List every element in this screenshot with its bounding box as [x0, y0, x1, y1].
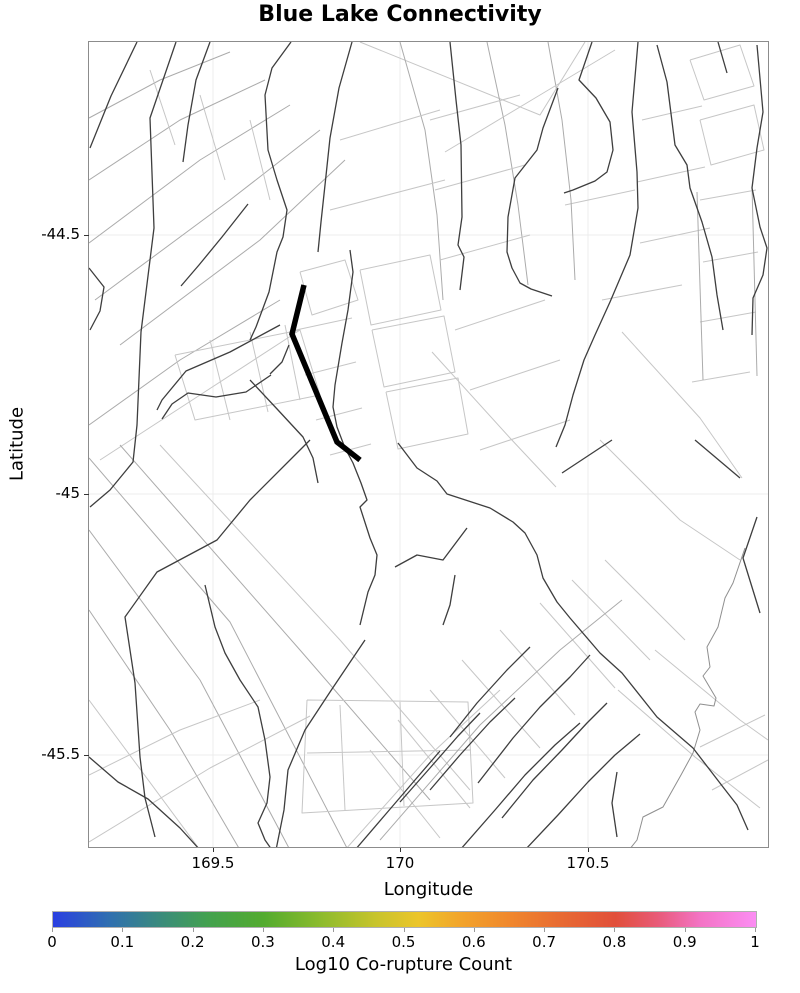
rupture-connection-line — [637, 167, 705, 182]
rupture-connection-line — [462, 660, 540, 748]
fault-trace-line — [400, 713, 480, 802]
x-tick-mark — [213, 848, 214, 852]
fault-trace-line — [695, 440, 740, 478]
rupture-connection-line — [540, 603, 615, 688]
fault-map-svg — [89, 42, 768, 847]
colorbar-tick-label: 0.3 — [251, 933, 275, 951]
fault-trace-line — [183, 42, 210, 162]
rupture-connection-line — [89, 716, 310, 842]
rupture-connection-line — [470, 360, 560, 390]
rupture-connection-line — [89, 458, 348, 847]
fault-trace-line — [318, 42, 352, 252]
fault-trace-line — [395, 528, 467, 567]
fault-trace-line — [90, 42, 176, 507]
rupture-connection-line — [89, 105, 290, 243]
colorbar-tick-mark — [52, 928, 53, 932]
colorbar-label: Log10 Co-rupture Count — [52, 954, 755, 975]
rupture-connection-line — [655, 650, 768, 740]
colorbar-tick-label: 0.5 — [392, 933, 416, 951]
rupture-connection-line — [386, 378, 468, 449]
colorbar-tick-label: 0.8 — [602, 933, 626, 951]
rupture-connection-line — [697, 192, 703, 380]
fault-trace-line — [562, 440, 612, 473]
rupture-connection-line — [752, 186, 757, 376]
rupture-connection-line — [445, 50, 615, 152]
rupture-connection-line — [622, 332, 742, 478]
colorbar-tick-label: 0.4 — [321, 933, 345, 951]
colorbar-tick-label: 0.7 — [532, 933, 556, 951]
fault-trace-line — [398, 443, 748, 830]
fault-trace-line — [718, 42, 727, 73]
fault-trace-line — [525, 734, 640, 847]
rupture-connection-line — [430, 95, 520, 120]
rupture-connection-line — [89, 700, 200, 847]
rupture-connection-line — [572, 580, 650, 660]
rupture-connection-line — [340, 705, 345, 810]
rupture-connection-line — [160, 445, 470, 790]
rupture-connection-line — [430, 690, 505, 778]
fault-trace-line — [743, 517, 760, 613]
rupture-connection-line — [305, 362, 356, 375]
colorbar-tick-label: 0.6 — [462, 933, 486, 951]
rupture-connection-line — [690, 45, 754, 100]
colorbar-tick-mark — [333, 928, 334, 932]
rupture-connection-line — [600, 440, 740, 560]
rupture-connection-line — [296, 318, 352, 330]
colorbar-tick-mark — [755, 928, 756, 932]
fault-trace-line — [355, 751, 440, 847]
rupture-connection-line — [300, 260, 358, 315]
x-tick-label: 170.5 — [567, 854, 610, 872]
fault-trace-line — [502, 703, 607, 818]
colorbar-tick-label: 0.2 — [181, 933, 205, 951]
rupture-connection-line — [400, 42, 443, 300]
rupture-connection-line — [700, 190, 756, 200]
colorbar-tick-mark — [544, 928, 545, 932]
x-tick-label: 170 — [386, 854, 415, 872]
colorbar-tick-mark — [614, 928, 615, 932]
y-axis-label: Latitude — [7, 407, 28, 481]
fault-trace-line — [270, 345, 289, 374]
fault-trace-line — [507, 88, 558, 296]
rupture-connection-line — [120, 445, 430, 800]
colorbar-tick-label: 0.9 — [673, 933, 697, 951]
fault-trace-line — [460, 723, 580, 847]
colorbar-tick-mark — [122, 928, 123, 932]
colorbar-tick-mark — [263, 928, 264, 932]
fault-trace-line — [430, 698, 515, 790]
fault-trace-line — [657, 45, 723, 330]
colorbar-tick-label: 0 — [47, 933, 57, 951]
rupture-connection-line — [605, 560, 685, 640]
rupture-connection-line — [548, 42, 575, 280]
rupture-connection-line — [345, 690, 500, 847]
fault-trace-line — [612, 772, 617, 837]
y-tick-label: -45.5 — [6, 745, 80, 763]
x-tick-mark — [400, 848, 401, 852]
highlighted-fault-line — [292, 285, 360, 460]
rupture-connection-line — [302, 700, 473, 813]
rupture-connection-line — [712, 760, 768, 790]
colorbar-tick-mark — [685, 928, 686, 932]
x-tick-mark — [588, 848, 589, 852]
rupture-connection-line — [89, 300, 280, 425]
rupture-connection-line — [618, 690, 760, 808]
colorbar-tick-mark — [193, 928, 194, 932]
rupture-connection-line — [340, 110, 440, 140]
coastline — [629, 548, 745, 847]
chart-title: Blue Lake Connectivity — [0, 2, 800, 27]
rupture-connection-line — [89, 52, 230, 118]
colorbar-tick-label: 0.1 — [110, 933, 134, 951]
fault-trace-line — [90, 42, 137, 148]
y-tick-label: -45 — [6, 484, 80, 502]
rupture-connection-line — [455, 300, 545, 330]
fault-trace-line — [443, 575, 455, 625]
rupture-connection-line — [372, 316, 455, 387]
fault-trace-line — [162, 375, 271, 419]
fault-trace-line — [276, 640, 365, 847]
y-tick-label: -44.5 — [6, 225, 80, 243]
rupture-connection-line — [432, 352, 556, 487]
rupture-connection-line — [250, 332, 268, 412]
fault-trace-line — [250, 380, 318, 483]
x-tick-label: 169.5 — [192, 854, 235, 872]
plot-area — [88, 41, 769, 848]
rupture-connection-line — [89, 80, 265, 180]
rupture-connection-line — [435, 165, 525, 190]
rupture-connection-line — [692, 372, 750, 382]
rupture-connection-line — [330, 180, 445, 210]
colorbar-tick-label: 1 — [750, 933, 760, 951]
figure: Blue Lake Connectivity Latitude 169.5170… — [0, 0, 800, 993]
rupture-connection-line — [700, 105, 764, 165]
rupture-connection-line — [89, 610, 240, 847]
colorbar — [52, 911, 757, 928]
rupture-connection-line — [89, 530, 290, 847]
fault-trace-line — [89, 757, 200, 847]
colorbar-tick-mark — [474, 928, 475, 932]
fault-trace-line — [556, 42, 638, 447]
fault-trace-line — [250, 42, 291, 340]
rupture-connection-line — [700, 312, 756, 322]
rupture-connection-line — [120, 160, 345, 345]
rupture-connection-line — [440, 235, 530, 260]
fault-trace-line — [125, 440, 310, 837]
x-axis-label: Longitude — [89, 879, 768, 900]
rupture-connection-line — [565, 190, 635, 205]
colorbar-tick-mark — [404, 928, 405, 932]
rupture-connection-line — [360, 42, 585, 115]
